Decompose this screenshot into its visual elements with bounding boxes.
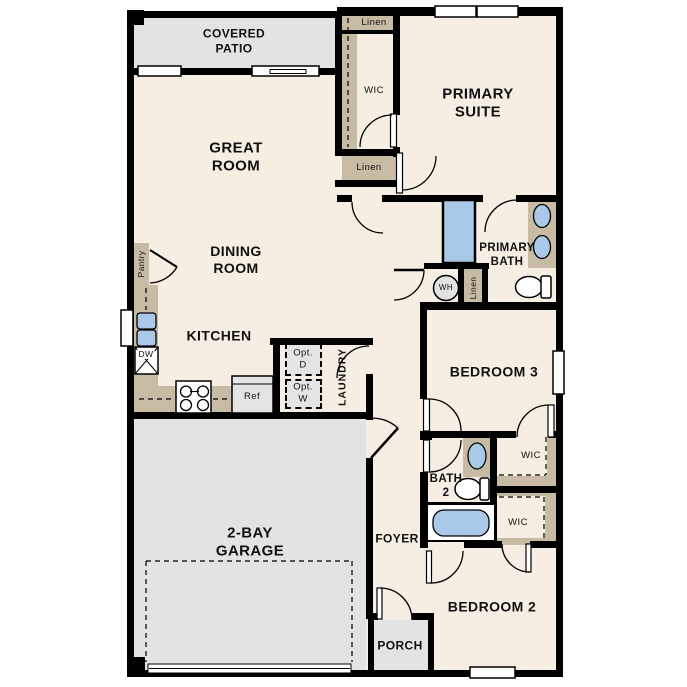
kitchen-window (121, 310, 133, 346)
primary-suite-label: PRIMARY SUITE (442, 86, 513, 123)
foyer-label: FOYER (375, 532, 418, 547)
linen-upper-label: Linen (361, 17, 386, 29)
front-door-arc (380, 588, 412, 620)
wic-bedroom3-door-leaf (548, 405, 554, 437)
garage-label: 2-BAY GARAGE (216, 525, 284, 562)
pantry-door-leaf (150, 250, 177, 267)
bath2-tub (433, 510, 489, 536)
opt-washer-label: Opt. W (293, 381, 313, 404)
refrigerator-label: Ref (244, 391, 260, 403)
linen-hall-label: Linen (356, 162, 381, 174)
pantry-label: Pantry (136, 251, 146, 278)
wic-primary-label: WIC (364, 85, 384, 97)
patio-slider-panel (270, 70, 306, 74)
front-door-leaf (377, 588, 382, 619)
bath2-label: BATH 2 (430, 472, 463, 500)
porch-label: PORCH (377, 639, 422, 654)
great-room-window (138, 66, 181, 76)
laundry-label: LAUNDRY (337, 348, 350, 406)
primary-sink (534, 236, 551, 259)
primary-suite-door-leaf (397, 153, 403, 193)
bath2-toilet-tank (480, 478, 489, 500)
shower (443, 200, 475, 263)
bedroom3-door-leaf (424, 399, 430, 431)
dishwasher-label: DW (138, 349, 155, 359)
pantry-door-arc (150, 267, 177, 283)
primary-suite-window (477, 6, 518, 17)
primary-bath-label: PRIMARY BATH (479, 241, 534, 269)
bath2-door-arc (429, 440, 461, 472)
wic-bedroom2-door-leaf (526, 544, 531, 572)
covered-patio-label: COVERED PATIO (203, 26, 265, 55)
bedroom2-label: BEDROOM 2 (448, 598, 536, 615)
dining-room-label: DINING ROOM (210, 243, 261, 277)
primary-bath-door-arc (485, 200, 517, 232)
wic-primary-door-arc (360, 115, 392, 147)
opt-dryer-label: Opt. D (293, 347, 313, 370)
primary-suite-window (435, 6, 476, 17)
floor-plan: COVERED PATIO GREAT ROOM DINING ROOM KIT… (0, 0, 687, 687)
primary-suite-door-arc (402, 156, 436, 190)
bedroom3-door-arc (429, 399, 461, 431)
garage-door-dash (146, 561, 352, 662)
wic-bedroom3-door-arc (517, 405, 549, 437)
wic-primary-door-leaf (391, 114, 397, 147)
kitchen-label: KITCHEN (186, 327, 251, 344)
bedroom3-label: BEDROOM 3 (450, 363, 538, 380)
wh-door-arc (394, 270, 424, 300)
garage-entry-door-leaf (371, 428, 398, 458)
dining-hall-door-arc (352, 202, 383, 233)
kitchen-sink-basin (137, 330, 156, 346)
primary-toilet-tank (541, 276, 551, 298)
bedroom2-window (470, 667, 515, 678)
great-room-label: GREAT ROOM (209, 140, 262, 177)
bath2-sink (468, 443, 486, 469)
wic-bedroom3-label: WIC (521, 450, 541, 462)
bedroom2-door-leaf (427, 551, 432, 583)
primary-sink (534, 205, 551, 228)
water-heater-label: WH (439, 283, 453, 293)
linen-bath-label: Linen (468, 277, 478, 300)
primary-toilet-bowl (516, 277, 543, 298)
bedroom3-window (553, 351, 564, 394)
garage-entry-door-arc (371, 418, 398, 428)
wic-bedroom2-label: WIC (508, 517, 528, 529)
fixtures-overlay (0, 0, 687, 687)
bath2-door-leaf (424, 440, 430, 472)
bedroom2-door-arc (431, 551, 463, 583)
kitchen-sink-basin (137, 313, 156, 329)
